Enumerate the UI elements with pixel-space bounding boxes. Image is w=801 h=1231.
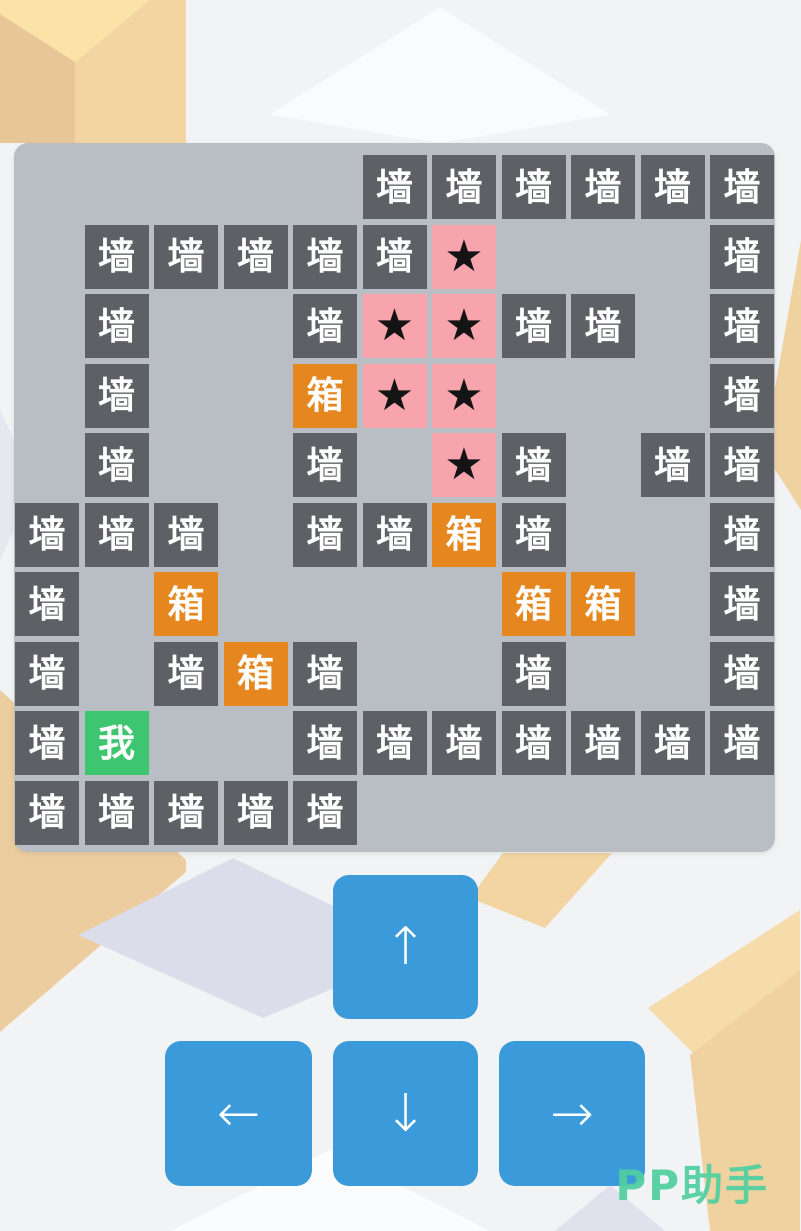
empty-cell <box>154 294 218 358</box>
empty-cell <box>571 781 635 845</box>
empty-cell <box>571 642 635 706</box>
bg-cube-right-edge <box>775 240 801 510</box>
empty-cell <box>224 433 288 497</box>
empty-cell <box>641 294 705 358</box>
tile-wall: 墙 <box>85 294 149 358</box>
empty-cell <box>571 503 635 567</box>
tile-wall: 墙 <box>571 711 635 775</box>
empty-cell <box>85 642 149 706</box>
tile-wall: 墙 <box>154 503 218 567</box>
empty-cell <box>641 503 705 567</box>
empty-cell <box>15 433 79 497</box>
empty-cell <box>641 225 705 289</box>
empty-cell <box>363 433 427 497</box>
tile-goal-star: ★ <box>432 364 496 428</box>
empty-cell <box>641 642 705 706</box>
tile-wall: 墙 <box>710 294 774 358</box>
tile-wall: 墙 <box>710 155 774 219</box>
tile-goal-star: ★ <box>432 225 496 289</box>
tile-wall: 墙 <box>502 503 566 567</box>
empty-cell <box>641 572 705 636</box>
empty-cell <box>85 572 149 636</box>
empty-cell <box>502 781 566 845</box>
tile-wall: 墙 <box>15 711 79 775</box>
empty-cell <box>154 155 218 219</box>
empty-cell <box>154 433 218 497</box>
tile-player: 我 <box>85 711 149 775</box>
tile-wall: 墙 <box>502 711 566 775</box>
tile-wall: 墙 <box>710 642 774 706</box>
game-board: 墙墙墙墙墙墙墙墙墙墙墙★墙墙墙★★墙墙墙墙箱★★墙墙墙★墙墙墙墙墙墙墙墙箱墙墙墙… <box>14 143 775 852</box>
empty-cell <box>224 294 288 358</box>
empty-cell <box>432 642 496 706</box>
tile-wall: 墙 <box>710 364 774 428</box>
tile-box: 箱 <box>571 572 635 636</box>
tile-wall: 墙 <box>641 155 705 219</box>
tile-wall: 墙 <box>15 642 79 706</box>
tile-box: 箱 <box>502 572 566 636</box>
empty-cell <box>15 364 79 428</box>
tile-wall: 墙 <box>293 711 357 775</box>
empty-cell <box>224 155 288 219</box>
empty-cell <box>502 364 566 428</box>
empty-cell <box>571 225 635 289</box>
tile-wall: 墙 <box>363 711 427 775</box>
tile-wall: 墙 <box>293 433 357 497</box>
tile-wall: 墙 <box>293 642 357 706</box>
empty-cell <box>502 225 566 289</box>
tile-wall: 墙 <box>293 225 357 289</box>
tile-wall: 墙 <box>710 572 774 636</box>
tile-wall: 墙 <box>432 711 496 775</box>
tile-wall: 墙 <box>15 572 79 636</box>
tile-wall: 墙 <box>710 711 774 775</box>
game-screen: 墙墙墙墙墙墙墙墙墙墙墙★墙墙墙★★墙墙墙墙箱★★墙墙墙★墙墙墙墙墙墙墙墙箱墙墙墙… <box>0 0 801 1231</box>
tile-wall: 墙 <box>502 294 566 358</box>
tile-box: 箱 <box>432 503 496 567</box>
empty-cell <box>85 155 149 219</box>
move-left-button[interactable]: ← <box>165 1041 312 1186</box>
empty-cell <box>154 364 218 428</box>
tile-wall: 墙 <box>15 503 79 567</box>
tile-wall: 墙 <box>224 781 288 845</box>
tile-wall: 墙 <box>293 503 357 567</box>
tile-wall: 墙 <box>85 781 149 845</box>
tile-wall: 墙 <box>502 433 566 497</box>
tile-wall: 墙 <box>154 225 218 289</box>
empty-cell <box>293 572 357 636</box>
empty-cell <box>224 503 288 567</box>
bg-cube-top-right <box>270 0 610 143</box>
bg-cube-top-left-right-face <box>0 0 186 143</box>
tile-wall: 墙 <box>85 364 149 428</box>
empty-cell <box>641 781 705 845</box>
tile-wall: 墙 <box>571 155 635 219</box>
tile-wall: 墙 <box>432 155 496 219</box>
tile-wall: 墙 <box>363 225 427 289</box>
empty-cell <box>363 572 427 636</box>
tile-wall: 墙 <box>571 294 635 358</box>
tile-goal-star: ★ <box>432 294 496 358</box>
tile-box: 箱 <box>224 642 288 706</box>
empty-cell <box>224 364 288 428</box>
tile-wall: 墙 <box>224 225 288 289</box>
tile-wall: 墙 <box>15 781 79 845</box>
empty-cell <box>15 225 79 289</box>
empty-cell <box>641 364 705 428</box>
bg-cube-left-edge <box>0 410 14 560</box>
watermark-pp-assistant: PP助手 <box>615 1152 769 1213</box>
empty-cell <box>432 572 496 636</box>
empty-cell <box>224 572 288 636</box>
tile-goal-star: ★ <box>432 433 496 497</box>
empty-cell <box>432 781 496 845</box>
empty-cell <box>363 642 427 706</box>
empty-cell <box>15 155 79 219</box>
tile-wall: 墙 <box>641 711 705 775</box>
tile-wall: 墙 <box>293 294 357 358</box>
tile-wall: 墙 <box>85 503 149 567</box>
tile-box: 箱 <box>154 572 218 636</box>
empty-cell <box>15 294 79 358</box>
tile-box: 箱 <box>293 364 357 428</box>
tile-wall: 墙 <box>710 433 774 497</box>
empty-cell <box>224 711 288 775</box>
empty-cell <box>571 433 635 497</box>
tile-wall: 墙 <box>363 155 427 219</box>
empty-cell <box>710 781 774 845</box>
tile-wall: 墙 <box>363 503 427 567</box>
move-down-button[interactable]: ↓ <box>333 1041 478 1186</box>
tile-wall: 墙 <box>710 503 774 567</box>
bg-cube-top-left-left-face <box>0 0 186 143</box>
empty-cell <box>363 781 427 845</box>
tile-wall: 墙 <box>154 781 218 845</box>
tile-wall: 墙 <box>710 225 774 289</box>
tile-wall: 墙 <box>85 225 149 289</box>
empty-cell <box>154 711 218 775</box>
empty-cell <box>293 155 357 219</box>
empty-cell <box>571 364 635 428</box>
bg-cube-center-wedge <box>460 850 620 930</box>
tile-goal-star: ★ <box>363 364 427 428</box>
tile-wall: 墙 <box>502 642 566 706</box>
tile-wall: 墙 <box>641 433 705 497</box>
tile-wall: 墙 <box>502 155 566 219</box>
move-up-button[interactable]: ↑ <box>333 875 478 1019</box>
tile-goal-star: ★ <box>363 294 427 358</box>
tile-wall: 墙 <box>293 781 357 845</box>
tile-wall: 墙 <box>154 642 218 706</box>
bg-cube-top-left-top-face <box>0 0 186 143</box>
tile-wall: 墙 <box>85 433 149 497</box>
